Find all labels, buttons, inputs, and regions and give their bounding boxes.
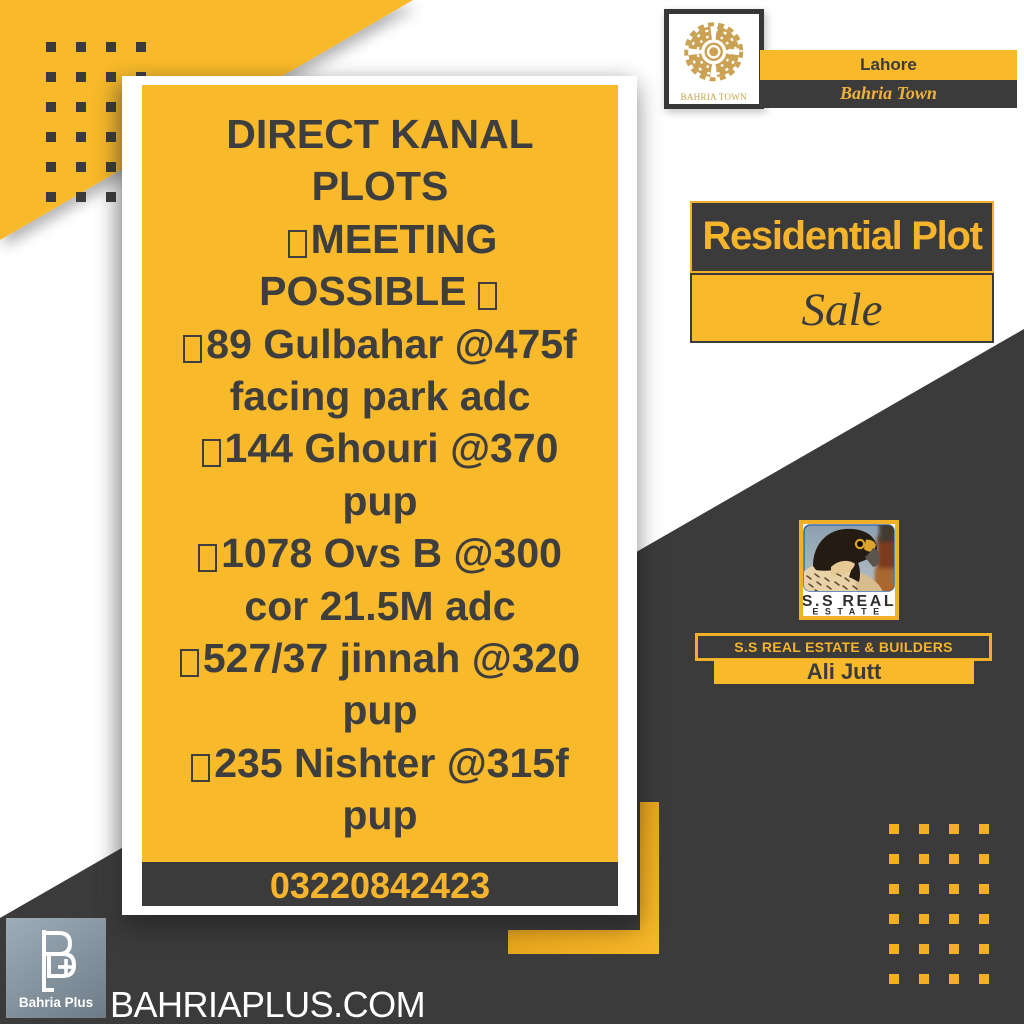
svg-text:BAHRIA TOWN: BAHRIA TOWN <box>680 92 747 102</box>
svg-text:ESTATE: ESTATE <box>812 607 885 617</box>
svg-text:Bahria Plus: Bahria Plus <box>19 995 93 1010</box>
